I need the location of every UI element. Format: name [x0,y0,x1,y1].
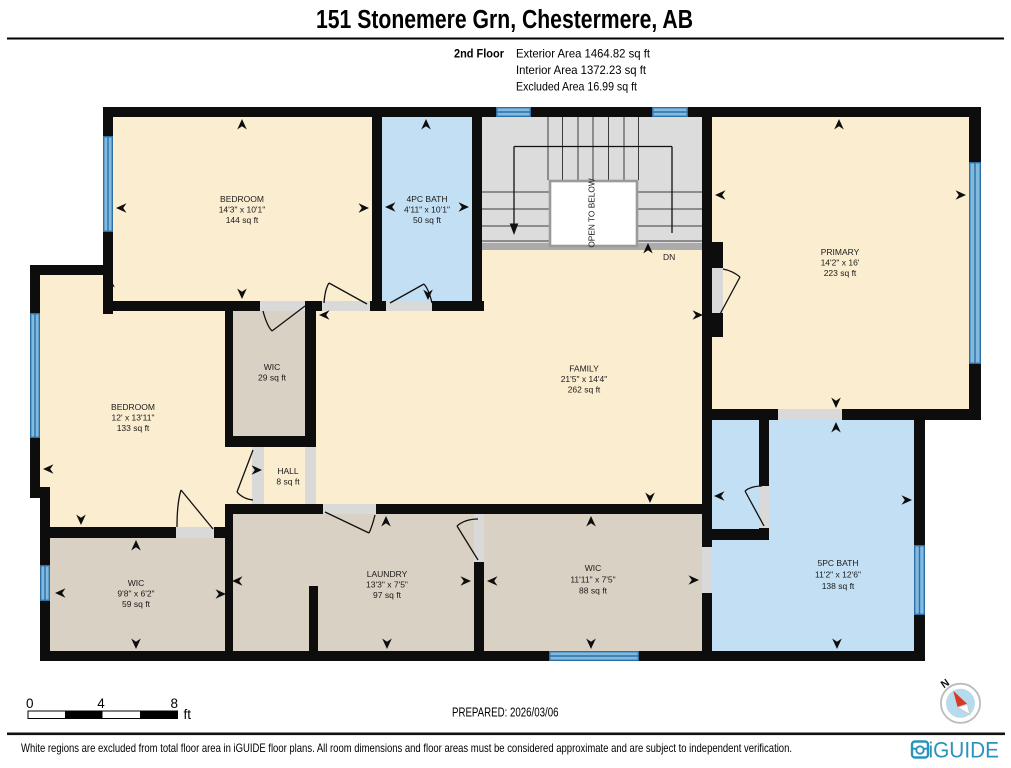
svg-text:PREPARED: 2026/03/06: PREPARED: 2026/03/06 [452,706,559,720]
svg-text:138 sq ft: 138 sq ft [822,581,855,591]
svg-text:14'2" x 16': 14'2" x 16' [821,258,860,268]
svg-text:DN: DN [663,252,675,262]
svg-text:LAUNDRY: LAUNDRY [367,569,408,579]
svg-text:11'11" x 7'5": 11'11" x 7'5" [570,575,615,585]
svg-text:WIC: WIC [585,563,602,573]
svg-text:Excluded Area 16.99 sq ft: Excluded Area 16.99 sq ft [516,80,638,94]
svg-text:151 Stonemere Grn, Chestermere: 151 Stonemere Grn, Chestermere, AB [316,6,693,34]
svg-text:8 sq ft: 8 sq ft [276,477,300,487]
svg-text:144 sq ft: 144 sq ft [226,215,259,225]
svg-text:29 sq ft: 29 sq ft [258,373,287,383]
svg-text:12' x 13'11": 12' x 13'11" [112,413,155,423]
svg-text:223 sq ft: 223 sq ft [824,268,857,278]
svg-text:50 sq ft: 50 sq ft [413,215,442,225]
svg-text:59 sq ft: 59 sq ft [122,599,151,609]
svg-text:0: 0 [26,696,34,711]
svg-text:FAMILY: FAMILY [569,364,599,374]
svg-text:ft: ft [184,707,192,722]
svg-text:HALL: HALL [277,466,299,476]
svg-text:4: 4 [97,696,105,711]
svg-text:13'3" x 7'5": 13'3" x 7'5" [366,580,408,590]
svg-text:133 sq ft: 133 sq ft [117,423,150,433]
svg-text:262 sq ft: 262 sq ft [568,385,601,395]
svg-text:97 sq ft: 97 sq ft [373,590,402,600]
svg-text:WIC: WIC [264,362,281,372]
svg-text:PRIMARY: PRIMARY [821,247,860,257]
svg-text:5PC BATH: 5PC BATH [818,558,859,568]
svg-text:BEDROOM: BEDROOM [220,194,264,204]
svg-text:Interior Area 1372.23 sq ft: Interior Area 1372.23 sq ft [516,63,647,77]
svg-text:iGUIDE: iGUIDE [929,738,1000,763]
svg-text:14'3" x 10'1": 14'3" x 10'1" [219,205,266,215]
svg-text:21'5" x 14'4": 21'5" x 14'4" [561,374,608,384]
svg-text:4'11" x 10'1": 4'11" x 10'1" [404,205,450,215]
svg-text:4PC BATH: 4PC BATH [407,194,448,204]
svg-text:2nd Floor: 2nd Floor [454,47,504,61]
svg-text:88 sq ft: 88 sq ft [579,586,608,596]
svg-text:WIC: WIC [128,578,145,588]
svg-text:OPEN TO BELOW: OPEN TO BELOW [587,178,597,247]
svg-text:Exterior Area 1464.82 sq ft: Exterior Area 1464.82 sq ft [516,47,651,61]
svg-text:9'8" x 6'2": 9'8" x 6'2" [117,589,154,599]
svg-text:8: 8 [171,696,179,711]
svg-text:White regions are excluded fro: White regions are excluded from total fl… [21,741,792,755]
svg-text:11'2" x 12'6": 11'2" x 12'6" [815,570,861,580]
svg-text:BEDROOM: BEDROOM [111,402,155,412]
